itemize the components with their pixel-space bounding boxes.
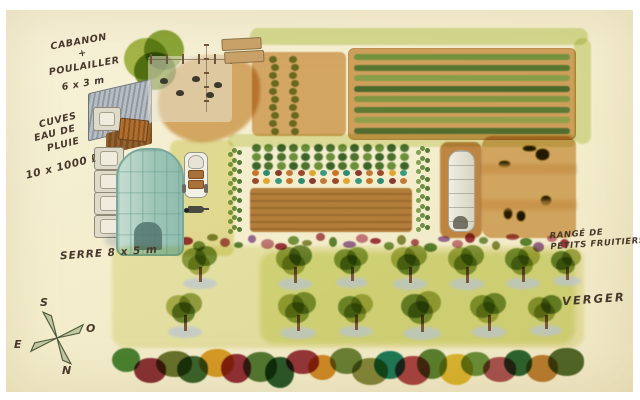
chicken-run [148, 56, 232, 122]
chicken-icon [176, 90, 184, 96]
row-crop-plot [348, 48, 576, 140]
bush-dot [301, 153, 310, 161]
seedling-dot [289, 72, 297, 79]
bush-dot [301, 144, 310, 152]
bush-dot [338, 144, 347, 152]
bush-dot [338, 153, 347, 161]
fruit-bush-dot [356, 234, 368, 243]
compass-north-label: N [62, 364, 72, 378]
fruit-bush-dot [479, 237, 488, 244]
seedling-dot [269, 88, 277, 95]
seedling-dot [291, 64, 299, 71]
flower-dot [320, 178, 327, 184]
soil-stripe [482, 164, 576, 174]
bush-dot [252, 162, 261, 170]
flower-dot [332, 170, 339, 176]
bush-dot [400, 153, 409, 161]
bush-dot [277, 144, 286, 152]
flower-dot [343, 170, 350, 176]
bush-dot [375, 144, 384, 152]
fruit-bush-dot [465, 233, 475, 243]
vine-sprig [420, 194, 425, 199]
fruit-bush-dot [411, 239, 419, 246]
chicken-icon [160, 78, 168, 84]
seedling-dot [291, 96, 299, 103]
seedling-dot [289, 56, 297, 63]
flower-dot [275, 170, 282, 176]
crop-row [354, 107, 570, 113]
vine-sprig [420, 156, 425, 161]
bush-dot [264, 144, 273, 152]
vine-sprig [420, 223, 425, 228]
bush-dot [363, 144, 372, 152]
seedling-dot [271, 128, 279, 135]
wheelbarrow-body [188, 206, 204, 213]
table [221, 37, 262, 51]
flower-dot [320, 170, 327, 176]
crop-row [354, 96, 570, 102]
fruit-bush-dot [288, 236, 299, 245]
seedling-dot [269, 56, 277, 63]
tilled-bed [250, 188, 412, 232]
compass-west-label: O [86, 322, 96, 336]
seedling-dot [289, 88, 297, 95]
flower-dot [275, 178, 282, 184]
squash-dab [523, 146, 536, 152]
seedling-dot [269, 104, 277, 111]
flower-dot [389, 178, 396, 184]
bush-dot [363, 153, 372, 161]
compass-rose-icon [19, 296, 95, 380]
tank-inner [99, 112, 115, 126]
squash-dab [536, 149, 549, 159]
seedling-dot [271, 64, 279, 71]
compass-east-label: E [14, 338, 22, 352]
water-tank-cube [93, 107, 121, 131]
flower-dot [298, 178, 305, 184]
bush-dot [277, 162, 286, 170]
soil-stripe [482, 200, 576, 210]
chicken-icon [206, 92, 214, 98]
bush-dot [289, 144, 298, 152]
flower-dot [263, 178, 270, 184]
chicken-icon [192, 76, 200, 82]
seedling-dot [271, 96, 279, 103]
flower-dot [252, 178, 259, 184]
wheelbarrow-icon [183, 204, 209, 215]
bush-dot [338, 162, 347, 170]
flower-dot [309, 178, 316, 184]
flower-dot [400, 170, 407, 176]
crop-row [354, 117, 570, 123]
seedling-dot [271, 80, 279, 87]
seedling-dot [291, 80, 299, 87]
wheelbarrow-wheel [184, 208, 189, 213]
flower-dot [252, 170, 259, 176]
flower-dot [355, 170, 362, 176]
fruit-bush-dot [316, 233, 325, 241]
bush-dot [387, 153, 396, 161]
fruit-bush-dot [520, 238, 532, 246]
bush-dot [387, 144, 396, 152]
bush-dot [264, 153, 273, 161]
bush-dot [264, 162, 273, 170]
tractor-wheel [182, 184, 186, 193]
grass-path-top [250, 28, 588, 45]
chicken-icon [214, 82, 222, 88]
seedling-dot [291, 112, 299, 119]
flower-dot [298, 170, 305, 176]
bush-dot [326, 162, 335, 170]
bush-dot [400, 162, 409, 170]
seedling-dot [291, 128, 299, 135]
flower-dot [366, 170, 373, 176]
crop-row [354, 128, 570, 134]
seedling-dot [269, 120, 277, 127]
fruit-bush-dot [397, 235, 406, 245]
bush-dot [375, 162, 384, 170]
flower-dot [343, 178, 350, 184]
tractor-hood [188, 155, 204, 169]
squash-plot [482, 136, 576, 238]
vine-sprig [420, 204, 425, 209]
bush-dot [252, 144, 261, 152]
fruit-bush-dot [438, 236, 450, 242]
flowering-hedge [112, 348, 584, 392]
bush-dot [326, 144, 335, 152]
flower-dot [366, 178, 373, 184]
vine-row-right [414, 146, 438, 236]
seedling-dot [269, 72, 277, 79]
seedling-dot [289, 104, 297, 111]
bush-dot [301, 162, 310, 170]
flower-dot [389, 170, 396, 176]
seedling-dot [289, 120, 297, 127]
bush-dot [350, 162, 359, 170]
tractor-seat [188, 170, 204, 179]
bush-dot [289, 153, 298, 161]
flower-dot [286, 170, 293, 176]
flower-dot [263, 170, 270, 176]
tunnel-entrance [453, 216, 468, 229]
flower-dot [400, 178, 407, 184]
bush-dot [314, 153, 323, 161]
bush-dot [314, 162, 323, 170]
flower-dot [355, 178, 362, 184]
wheelbarrow-handle [203, 208, 209, 210]
bush-dot [400, 144, 409, 152]
tank-inner [100, 151, 118, 166]
grass-path-right [574, 38, 591, 144]
bush-dot [350, 144, 359, 152]
wood-pallet-icon [118, 118, 149, 143]
squash-dab [517, 211, 525, 220]
watercolor-garden-plan: S O E N CABANON + POULAILLER 6 x 3 m CUV… [0, 0, 640, 400]
flower-dot [309, 170, 316, 176]
seedling-dot [271, 112, 279, 119]
vine-sprig [420, 213, 425, 218]
bush-dot [289, 162, 298, 170]
bush-dot [350, 153, 359, 161]
crop-row [354, 86, 570, 92]
fruit-bush-dot [506, 234, 519, 240]
picnic-tables-icon [219, 35, 267, 69]
vine-sprig [420, 184, 425, 189]
vine-sprig [420, 175, 425, 180]
flower-dot [377, 170, 384, 176]
bush-dot [314, 144, 323, 152]
crop-row [354, 75, 570, 81]
fruit-bush-dot [248, 235, 256, 243]
crop-row [354, 65, 570, 71]
compass-south-label: S [40, 296, 49, 310]
flower-bed [250, 144, 412, 186]
bush-dot [387, 162, 396, 170]
bush-dot [252, 153, 261, 161]
flower-dot [332, 178, 339, 184]
hedge-bush [548, 348, 584, 376]
tractor-icon [182, 152, 208, 198]
fruit-bush-dot [370, 238, 381, 244]
vine-sprig [420, 146, 425, 151]
flower-dot [286, 178, 293, 184]
crop-row [354, 54, 570, 60]
table [224, 50, 265, 64]
flower-dot [377, 178, 384, 184]
bush-dot [326, 153, 335, 161]
vine-sprig [420, 165, 425, 170]
bush-dot [375, 153, 384, 161]
tractor-seat [188, 180, 204, 189]
bush-dot [277, 153, 286, 161]
orchard-ground-wash [260, 252, 575, 344]
tractor-wheel [204, 184, 208, 193]
bush-dot [363, 162, 372, 170]
